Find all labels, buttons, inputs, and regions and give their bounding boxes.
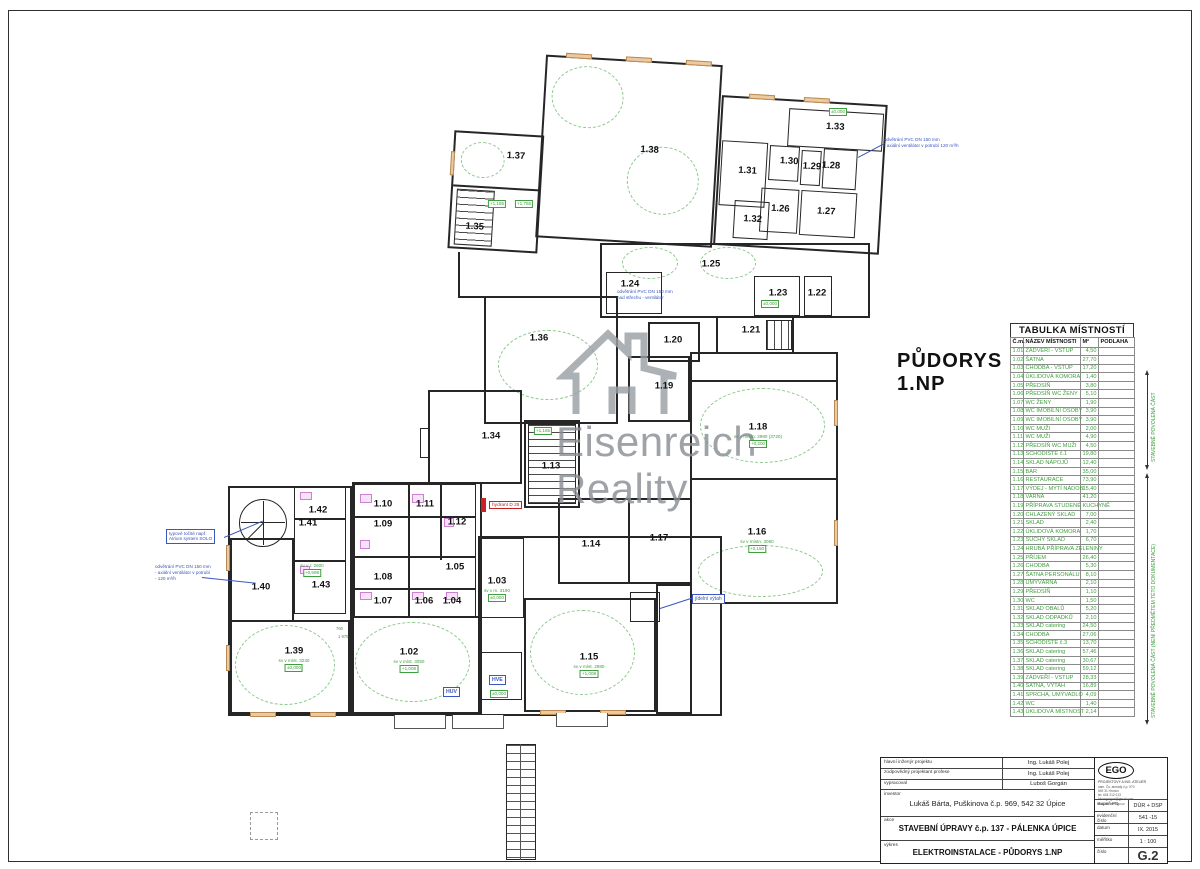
room-label-1.23: 1.23 [769,288,788,299]
room-table-cell [1099,450,1135,459]
plan-graphic [834,400,838,426]
room-table-cell [1099,519,1135,528]
room-table-row: 1.19PŘÍPRAVA STUDENÉ KUCHYNĚ [1011,502,1135,511]
room-label-1.37: 1.37 [506,150,525,162]
room-table-cell: ÚKLIDOVÁ KOMORA [1024,373,1081,382]
room-table-cell: 15,40 [1081,485,1099,494]
drawing-sheet: 1.371.351.381.331.311.301.291.281.261.27… [0,0,1200,869]
plan-graphic: +1,008 [400,665,418,673]
room-table-row: 1.04ÚKLIDOVÁ KOMORA1,40 [1011,373,1135,382]
room-label-1.27: 1.27 [817,205,836,217]
room-table-row: 1.11WC MUŽI4,90 [1011,433,1135,442]
room-table-cell: SCHODIŠTĚ č.3 [1024,639,1081,648]
tb-label-drafted-by: vypracoval [881,780,1003,790]
tb-label-chief-engineer: hlavní inženýr projektu [881,758,1003,768]
room-table-row: 1.21SKLAD2,40 [1011,519,1135,528]
room-table-cell: 26,40 [1081,553,1099,562]
watermark-line2: Reality [556,465,757,512]
room-label-1.17: 1.17 [650,533,669,544]
dimension-text: 760 [336,626,343,631]
room-label-1.31: 1.31 [738,165,757,177]
room-table-cell: ŠATNA [1024,356,1081,365]
room-table-row: 1.37SKLAD catering30,67 [1011,656,1135,665]
room-table-cell: SUCHÝ SKLAD [1024,536,1081,545]
room-table-cell [1099,674,1135,683]
elevation-mark: sv v míst. 3050+1,008 [394,659,425,673]
plan-graphic: ±0,000 [490,690,508,698]
room-table-cell: 2,40 [1081,519,1099,528]
room-table-cell: 1,40 [1081,699,1099,708]
room-table-cell: 2,10 [1081,613,1099,622]
room-table-cell: 1,70 [1081,527,1099,536]
plan-graphic: +0,200 [749,440,767,448]
room-table-cell: SKLAD catering [1024,648,1081,657]
note-hydrant: hydrant D 25 [489,501,522,509]
room-table-title: TABULKA MÍSTNOSTÍ [1010,323,1134,337]
room-table-cell [1099,459,1135,468]
plan-graphic [226,645,230,671]
tb-label-drawing: výkres [884,843,898,848]
plan-graphic [360,494,372,503]
plan-graphic: +0,200 [734,440,782,448]
room-table-grid: Č.m.NÁZEV MÍSTNOSTIM²PODLAHA 1.01ZÁDVEŘÍ… [1010,337,1135,717]
room-table-row: 1.26CHODBA5,30 [1011,562,1135,571]
room-table-cell: 1.37 [1011,656,1024,665]
company-address-line: www.atelier-ego.cz [1098,802,1164,806]
room-label-1.38: 1.38 [640,144,659,156]
room-label-1.13: 1.13 [542,461,561,472]
room-table-row: 1.12PŘEDSÍŇ WC MUŽI4,50 [1011,442,1135,451]
room-table-cell: CHODBA [1024,562,1081,571]
room-table-cell: 4,50 [1081,442,1099,451]
plan-graphic: ±0,000 [484,594,510,602]
room-label-1.14: 1.14 [582,539,601,550]
room-table-cell [1099,424,1135,433]
room-table-cell: 59,12 [1081,665,1099,674]
room-table-row: 1.30WC1,50 [1011,596,1135,605]
elevation-mark: sv v míst. 2980+1,008 [574,664,605,678]
room-table-cell: WC MUŽI [1024,433,1081,442]
room-label-1.16: 1.16 [748,527,767,538]
plan-graphic: +1,165 [488,200,506,208]
plan-graphic [766,320,792,350]
plan-graphic [458,296,486,298]
room-table-cell: 1.29 [1011,588,1024,597]
scope-arrow-upper [1147,374,1148,466]
title-block-right: EGO PROJEKTOVÝ A ING. ATELIÉR nám. Čs. a… [1095,758,1167,863]
plan-graphic: výkres ELEKTROINSTALACE - PŮDORYS 1.NP [881,841,1094,863]
room-table-cell: 8,10 [1081,570,1099,579]
room-table-cell: 1.17 [1011,485,1024,494]
room-table-cell [1099,579,1135,588]
room-table-row: 1.28UMÝVÁRNA2,10 [1011,579,1135,588]
room-label-1.11: 1.11 [416,499,434,510]
plan-graphic [294,560,346,562]
room-table-cell [1099,588,1135,597]
plan-graphic [420,428,430,458]
room-table-cell: 3,90 [1081,407,1099,416]
room-table-cell: VARNA [1024,493,1081,502]
note-vent-top-right: odvětrání PVC DN 150 mm- axiální ventilá… [884,137,959,149]
room-table-cell: PŘEDSÍŇ WC MUŽI [1024,442,1081,451]
plan-graphic: ±0,000 [761,300,779,308]
room-table-column-header: Č.m. [1011,338,1024,348]
room-table-cell: 4,90 [1081,433,1099,442]
room-table-cell [1099,691,1135,700]
plan-graphic [1145,370,1149,375]
plan-graphic: +0,150 [748,545,766,553]
room-table-row: 1.10WC MUŽI2,00 [1011,424,1135,433]
plan-graphic: +1,008 [394,665,425,673]
plan-title-line2: 1.NP [897,373,1002,396]
room-label-1.07: 1.07 [374,596,393,607]
plan-graphic [556,713,608,727]
room-table-cell: SKLAD OBALŮ [1024,605,1081,614]
room-table-row: 1.17VÝDEJ - MYTÍ NÁDOBÍ15,40 [1011,485,1135,494]
room-table-cell: SKLAD catering [1024,665,1081,674]
room-table-cell: 1.18 [1011,493,1024,502]
room-table-cell [1099,433,1135,442]
room-table-cell: ŠATNA, VÝTAH [1024,682,1081,691]
dimension-text: 1 975 [338,634,348,639]
room-label-1.40: 1.40 [252,582,271,593]
plan-graphic: Č.m.NÁZEV MÍSTNOSTIM²PODLAHA [1011,338,1135,348]
room-table-cell: 1.14 [1011,459,1024,468]
note-line: nad střechu - ventilátor [617,295,673,301]
plan-graphic: vypracoval Luboš Gorgán [881,780,1094,791]
room-table-cell: 1.31 [1011,605,1024,614]
elevation-mark: +1,755 [515,200,533,208]
room-table-row: 1.02ŠATNA27,70 [1011,356,1135,365]
room-table-row: 1.32SKLAD ODPADKŮ2,10 [1011,613,1135,622]
plan-top-wing: 1.371.351.381.331.311.301.291.281.261.27… [439,36,891,277]
room-table-cell: 1.24 [1011,545,1024,554]
room-table-cell: 1.30 [1011,596,1024,605]
plan-graphic: +0,150 [740,545,773,553]
room-table-cell: 1,40 [1081,373,1099,382]
room-table-row: 1.05PŘEDSÍŇ3,80 [1011,381,1135,390]
room-table-cell: 1.27 [1011,570,1024,579]
plan-graphic [564,334,676,414]
room-table-cell [1099,381,1135,390]
room-table-cell: 27,06 [1081,631,1099,640]
plan-graphic: Č.m.NÁZEV MÍSTNOSTIM²PODLAHA [1011,338,1135,348]
room-table-cell: 1.16 [1011,476,1024,485]
ego-logo: EGO [1098,762,1134,779]
room-table-row: 1.33SKLAD catering24,50 [1011,622,1135,631]
room-table-column-header: M² [1081,338,1099,348]
plan-graphic [354,556,476,558]
room-label-1.34: 1.34 [482,431,501,442]
tb-label-investor: investor [884,792,901,797]
plan-graphic [250,712,276,717]
plan-graphic: +1,165 [534,427,552,435]
room-table-cell [1099,416,1135,425]
room-table-cell [1099,665,1135,674]
room-table-cell: WC IMOBILNÍ OSOBY [1024,416,1081,425]
plan-graphic: +1,165 [488,200,506,208]
room-table-cell: CHLAZENÝ SKLAD [1024,510,1081,519]
room-table-row: 1.31SKLAD OBALŮ5,20 [1011,605,1135,614]
plan-graphic: +1,755 [515,200,533,208]
room-table-cell: 1.09 [1011,416,1024,425]
room-table-cell: 1.12 [1011,442,1024,451]
room-table-cell: 19,80 [1081,450,1099,459]
room-table-cell: 1.08 [1011,407,1024,416]
room-table-cell: SKLAD ODPADKŮ [1024,613,1081,622]
room-table: TABULKA MÍSTNOSTÍ Č.m.NÁZEV MÍSTNOSTIM²P… [1010,323,1134,717]
room-table-cell: 17,20 [1081,364,1099,373]
room-table-cell: 73,90 [1081,476,1099,485]
room-table-cell: 1.15 [1011,467,1024,476]
plan-graphic: ±0,000 [761,300,779,308]
room-table-row: 1.40ŠATNA, VÝTAH16,89 [1011,682,1135,691]
room-table-cell: PŘEDSÍŇ [1024,588,1081,597]
room-table-cell: ÚKLIDOVÁ KOMORA [1024,527,1081,536]
plan-graphic: +1,165 [534,427,552,435]
room-label-1.19: 1.19 [655,381,674,392]
elevation-mark: sv v r. 2600+0,598 [300,563,324,577]
plan-graphic: ±0,000 [829,108,847,116]
note-line: - axiální ventilátor v potrubí 120 m³/h [884,143,959,149]
room-table-cell: PŘEDSÍŇ [1024,381,1081,390]
room-table-cell [1099,699,1135,708]
tb-value-drafted-by: Luboš Gorgán [1003,780,1094,790]
room-table-cell: 3,90 [1081,416,1099,425]
room-table-cell [1099,399,1135,408]
room-table-cell: VÝDEJ - MYTÍ NÁDOBÍ [1024,485,1081,494]
room-table-cell: 1.20 [1011,510,1024,519]
room-table-row: 1.01ZÁDVEŘÍ - VSTUP4,50 [1011,347,1135,356]
plan-graphic [612,390,632,414]
room-table-cell: SKLAD catering [1024,622,1081,631]
room-table-cell: SPRCHA, UMÝVADLO [1024,691,1081,700]
room-table-cell [1099,682,1135,691]
room-table-cell: UMÝVÁRNA [1024,579,1081,588]
note-dumbwaiter: jídelní výtah [692,594,725,604]
room-table-cell [1099,493,1135,502]
plan-graphic: zodpovědný projektant profese Ing. Lukáš… [881,769,1094,780]
watermark-line1: Eisenreich [556,418,757,465]
room-table-cell [1099,613,1135,622]
room-label-1.22: 1.22 [808,288,827,299]
tb-meta-label: měřítko [1095,836,1129,847]
room-table-cell [1099,605,1135,614]
room-table-cell: 1.02 [1011,356,1024,365]
company-logo-block: EGO PROJEKTOVÝ A ING. ATELIÉR nám. Čs. a… [1095,758,1167,800]
room-table-cell: 5,20 [1081,605,1099,614]
plan-graphic: akce STAVEBNÍ ÚPRAVY č.p. 137 - PÁLENKA … [881,817,1094,842]
room-table-row: 1.06PŘEDSÍŇ WC ŽENY5,10 [1011,390,1135,399]
room-table-row: 1.07WC ŽENY1,90 [1011,399,1135,408]
plan-graphic: +1,755 [515,200,533,208]
plan-graphic: +0,598 [300,569,324,577]
room-table-cell: 5,10 [1081,390,1099,399]
tb-label-project: akce [884,818,894,823]
room-table-cell: WC [1024,699,1081,708]
room-table-cell [1099,347,1135,356]
tb-value-number: G.2 [1129,848,1167,863]
room-table-row: 1.42WC1,40 [1011,699,1135,708]
room-label-1.06: 1.06 [415,596,434,607]
room-table-cell: 16,89 [1081,682,1099,691]
elevation-mark: sv v míst. 3240±0,000 [279,658,310,672]
room-table-cell: 30,67 [1081,656,1099,665]
room-table-cell [1099,373,1135,382]
note-vent-left: odvětrání PVC DN 150 mm- axiální ventilá… [155,564,211,582]
room-table-row: 1.22ÚKLIDOVÁ KOMORA1,70 [1011,527,1135,536]
room-table-cell: 1.06 [1011,390,1024,399]
plan-graphic: stupeň PDDÚR + DSPevidenční číslo541 -15… [1095,800,1167,848]
room-table-cell: CHODBA - VSTUP [1024,364,1081,373]
elevation-mark: ±0,000 [490,690,508,698]
plan-graphic [622,247,678,279]
tb-meta-row: evidenční číslo541 -15 [1095,812,1167,824]
room-table-cell: 3,80 [1081,381,1099,390]
room-table-cell: 1.40 [1011,682,1024,691]
plan-graphic: +0,598 [303,569,321,577]
plan-graphic [310,712,336,717]
room-label-1.26: 1.26 [771,203,790,215]
note-huv: HUV [443,687,460,697]
room-label-1.30: 1.30 [780,155,799,167]
room-table-cell: SKLAD [1024,519,1081,528]
room-table-cell: 1.25 [1011,553,1024,562]
room-label-1.12: 1.12 [448,517,467,528]
room-table-row: 1.27ŠATNA PERSONÁLU8,10 [1011,570,1135,579]
room-table-cell [1099,390,1135,399]
room-table-cell: HRUBÁ PŘÍPRAVA ZELENINY [1024,545,1081,554]
room-label-1.03: 1.03 [488,576,507,587]
room-table-cell [1099,510,1135,519]
room-table-cell: ÚKLIDOVÁ MÍSTNOST [1024,708,1081,717]
room-table-cell [1099,485,1135,494]
tb-meta-row: datumIX. 2015 [1095,824,1167,836]
room-table-cell: 1.05 [1011,381,1024,390]
room-table-cell: BAR [1024,467,1081,476]
room-table-cell: 4,09 [1081,691,1099,700]
room-table-row: 1.36SKLAD catering57,46 [1011,648,1135,657]
room-label-1.42: 1.42 [309,505,328,516]
room-table-row: 1.41SPRCHA, UMÝVADLO4,09 [1011,691,1135,700]
tb-meta-value: IX. 2015 [1129,824,1167,835]
room-table-cell: 12,40 [1081,459,1099,468]
plan-title: PŮDORYS 1.NP [897,350,1002,396]
room-label-1.36: 1.36 [530,333,549,344]
room-table-cell: 1.35 [1011,639,1024,648]
room-table-cell: 1.38 [1011,665,1024,674]
elevation-mark: ±0,000 [829,108,847,116]
room-table-column-header: PODLAHA [1099,338,1135,348]
tb-meta-value: 541 -15 [1129,812,1167,823]
plan-graphic [520,744,521,860]
watermark: Eisenreich Reality [556,322,757,512]
elevation-mark: +1,165 [534,427,552,435]
room-label-1.18: 1.18 [749,422,768,433]
room-table-cell: WC ŽENY [1024,399,1081,408]
plan-graphic [630,592,660,622]
room-table-row: 1.16RESTAURACE73,90 [1011,476,1135,485]
room-table-cell: 7,00 [1081,510,1099,519]
room-table-cell: 1.32 [1011,613,1024,622]
room-table-row: 1.35SCHODIŠTĚ č.313,70 [1011,639,1135,648]
room-table-cell: 1.34 [1011,631,1024,640]
room-table-cell: 1.03 [1011,364,1024,373]
plan-graphic: ±0,000 [279,664,310,672]
room-label-1.25: 1.25 [702,259,721,270]
plan-graphic [454,189,495,247]
room-table-row: 1.23SUCHÝ SKLAD6,70 [1011,536,1135,545]
room-label-1.02: 1.02 [400,647,419,658]
tb-label-number: číslo [1095,848,1129,863]
tb-value-drawing: ELEKTROINSTALACE - PŮDORYS 1.NP [913,848,1063,857]
room-table-cell: 1.41 [1011,691,1024,700]
room-table-cell: 1.04 [1011,373,1024,382]
scope-note-upper: STAVEBNĚ POVOLENÁ ČÁST [1151,392,1157,462]
title-block: hlavní inženýr projektu Ing. Lukáš Polej… [880,757,1168,864]
room-table-cell [1099,622,1135,631]
plan-graphic [226,545,230,571]
room-table-cell: WC IMOBILNÍ OSOBY [1024,407,1081,416]
plan-graphic [250,812,278,840]
tb-meta-row: měřítko1 : 100 [1095,836,1167,848]
room-label-1.39: 1.39 [285,646,304,657]
room-label-1.15: 1.15 [580,652,599,663]
room-table-row: 1.09WC IMOBILNÍ OSOBY3,90 [1011,416,1135,425]
room-table-row: 1.18VARNA41,20 [1011,493,1135,502]
room-table-cell: PŘEDSÍŇ WC ŽENY [1024,390,1081,399]
plan-graphic: hlavní inženýr projektu Ing. Lukáš Polej [881,758,1094,769]
room-table-cell: 1.36 [1011,648,1024,657]
elevation-mark: sv v m. 3190±0,000 [484,588,510,602]
room-label-1.05: 1.05 [446,562,465,573]
room-table-cell: WC MUŽI [1024,424,1081,433]
room-table-cell [1099,364,1135,373]
plan-graphic [440,484,442,560]
room-table-cell: 1.22 [1011,527,1024,536]
tb-meta-label: datum [1095,824,1129,835]
room-label-1.33: 1.33 [826,121,845,133]
room-table-cell: 41,20 [1081,493,1099,502]
plan-graphic: ±0,000 [490,690,508,698]
plan-graphic: ±0,000 [829,108,847,116]
room-table-row: 1.15BAR35,00 [1011,467,1135,476]
plan-title-line1: PŮDORYS [897,350,1002,373]
tb-meta-value: 1 : 100 [1129,836,1167,847]
plan-graphic [408,484,410,618]
room-table-cell: ZÁDVEŘÍ - VSTUP [1024,674,1081,683]
room-table-cell [1099,708,1135,717]
room-table-cell: 1.26 [1011,562,1024,571]
room-label-1.24: 1.24 [621,279,640,290]
plan-graphic [452,715,504,729]
room-table-cell: 1.42 [1011,699,1024,708]
room-table-row: 1.20CHLAZENÝ SKLAD7,00 [1011,510,1135,519]
plan-graphic [360,592,372,600]
room-table-cell: 1,10 [1081,588,1099,597]
plan-graphic [394,715,446,729]
plan-graphic [1145,720,1149,725]
room-table-cell [1099,467,1135,476]
tb-meta-label: evidenční číslo [1095,812,1129,823]
room-table-cell: CHODBA [1024,631,1081,640]
room-table-cell: 1,50 [1081,596,1099,605]
room-table-row: 1.03CHODBA - VSTUP17,20 [1011,364,1135,373]
room-table-cell: WC [1024,596,1081,605]
room-table-row: 1.39ZÁDVEŘÍ - VSTUP28,33 [1011,674,1135,683]
plan-graphic [1145,473,1149,478]
room-table-cell: 24,50 [1081,622,1099,631]
